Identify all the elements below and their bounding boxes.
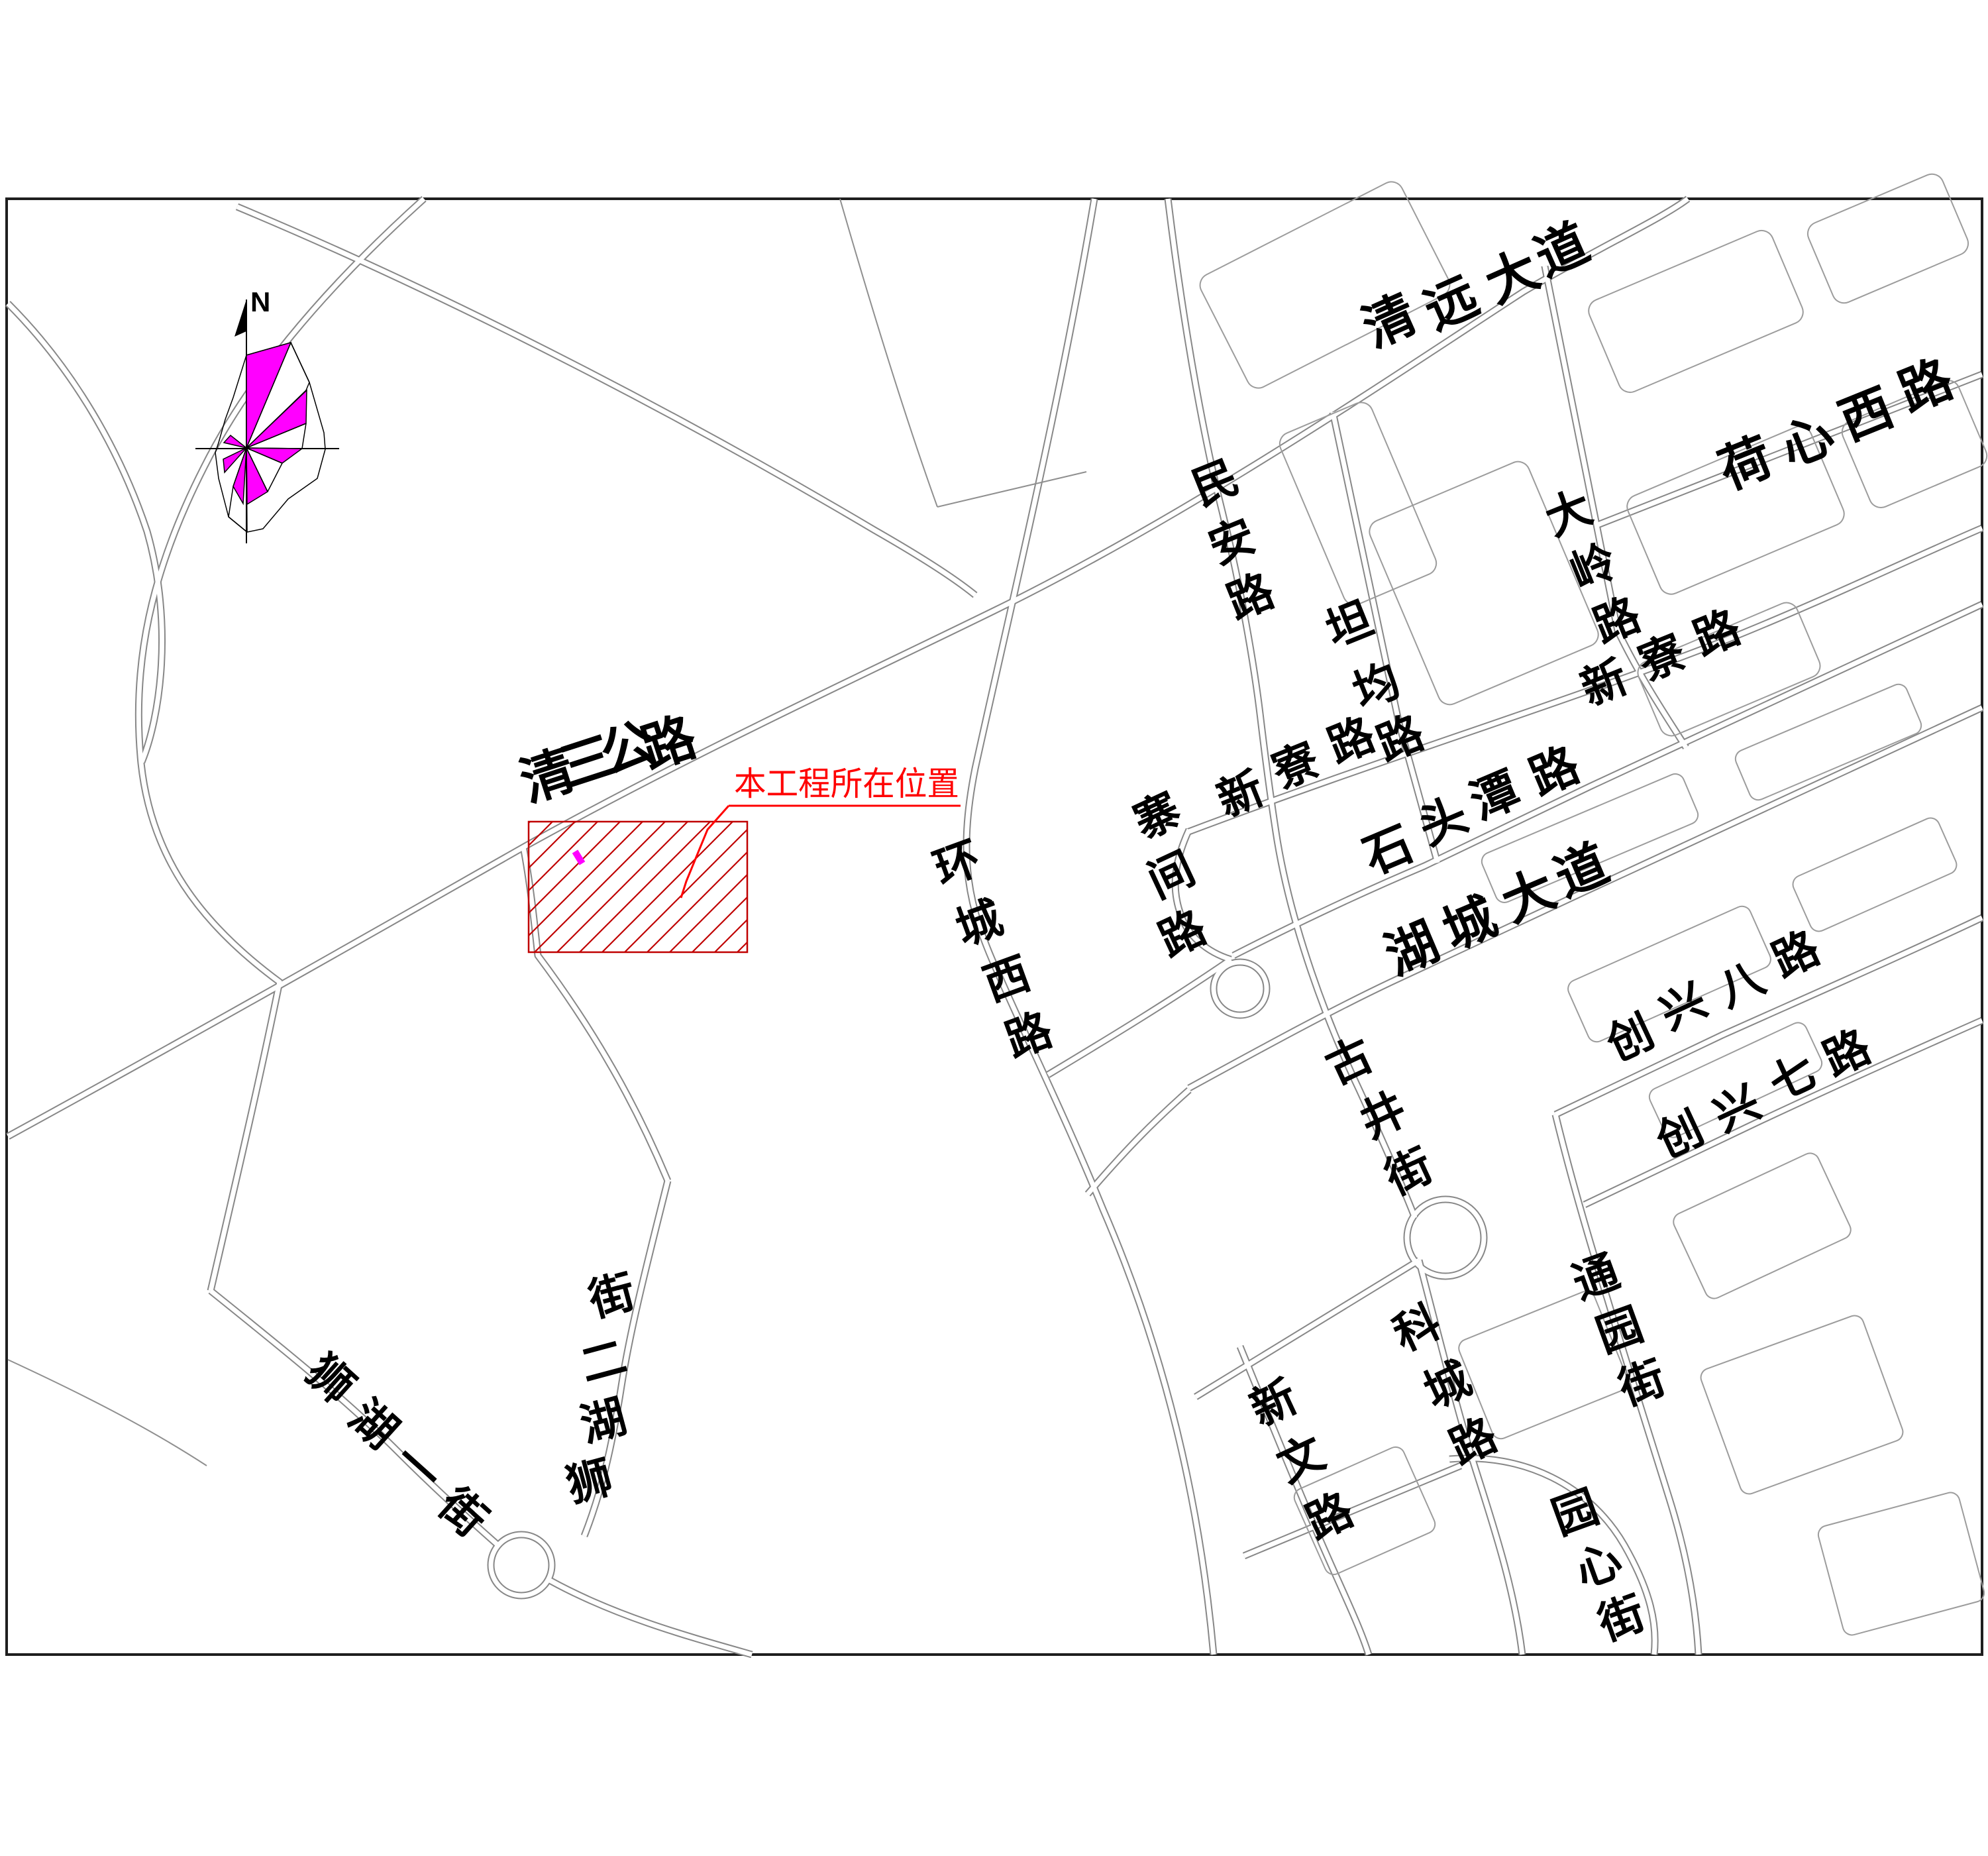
road-label-minan-lu: 民安路 [1185,451,1281,629]
road-label-shihu-erjie: 狮湖二街 [561,1266,640,1511]
road-label-xinwen-lu: 新文路 [1243,1371,1361,1549]
road-label-zhaijian-lu: 寨间路 [1126,784,1214,967]
parcel-line [937,472,1086,507]
road-label-chuangxing-balu: 创兴八路 [1598,922,1828,1071]
city-block [1585,227,1807,396]
road-label-tongyuan-jie: 通园街 [1566,1246,1672,1415]
road-label-hexin-xilu: 荷心西路 [1710,349,1961,500]
location-map-canvas: 本工程所在位置 N 清远大道 荷心西路 民安路 坦均路 大岭路 新寮路 新寮路 … [0,0,1988,1856]
city-block [1699,1313,1906,1497]
road-line [237,207,975,595]
north-label: N [250,286,270,317]
city-block [1733,681,1924,802]
road-line [1048,959,1231,1075]
interchange-loop [1407,1199,1484,1276]
rose-petal [246,448,302,463]
road-label-gujing-jie: 古井街 [1318,1029,1440,1205]
rose-petal [224,435,246,448]
city-block [1816,1490,1987,1637]
project-location-label: 本工程所在位置 [734,765,959,802]
parcel-line [840,199,937,507]
project-site-hatch [529,822,747,952]
parcel-line [8,1360,207,1466]
road-line [1196,1260,1419,1397]
project-site-group: 本工程所在位置 [529,765,961,952]
road-label-qingsan-gonglu: 清三公路 [513,706,704,812]
road-line [237,207,975,595]
road-line [8,199,1688,1136]
north-arrow-icon [235,300,246,337]
road-line [1244,1466,1461,1556]
wind-rose: N [195,286,339,543]
road-label-huancheng-xilu: 环城西路 [927,832,1059,1067]
interchange-loop [491,1535,552,1596]
interchange-loop [1214,962,1267,1015]
city-block [1790,815,1960,934]
city-block [1804,170,1971,307]
location-map-page: 本工程所在位置 N 清远大道 荷心西路 民安路 坦均路 大岭路 新寮路 新寮路 … [0,0,1988,1856]
road-line [550,1580,752,1655]
road-label-chuangxing-qilu: 创兴七路 [1648,1021,1879,1168]
city-block [1671,1150,1854,1301]
rose-petal [246,448,268,504]
road-label-kecheng-lu: 科城路 [1386,1296,1505,1474]
